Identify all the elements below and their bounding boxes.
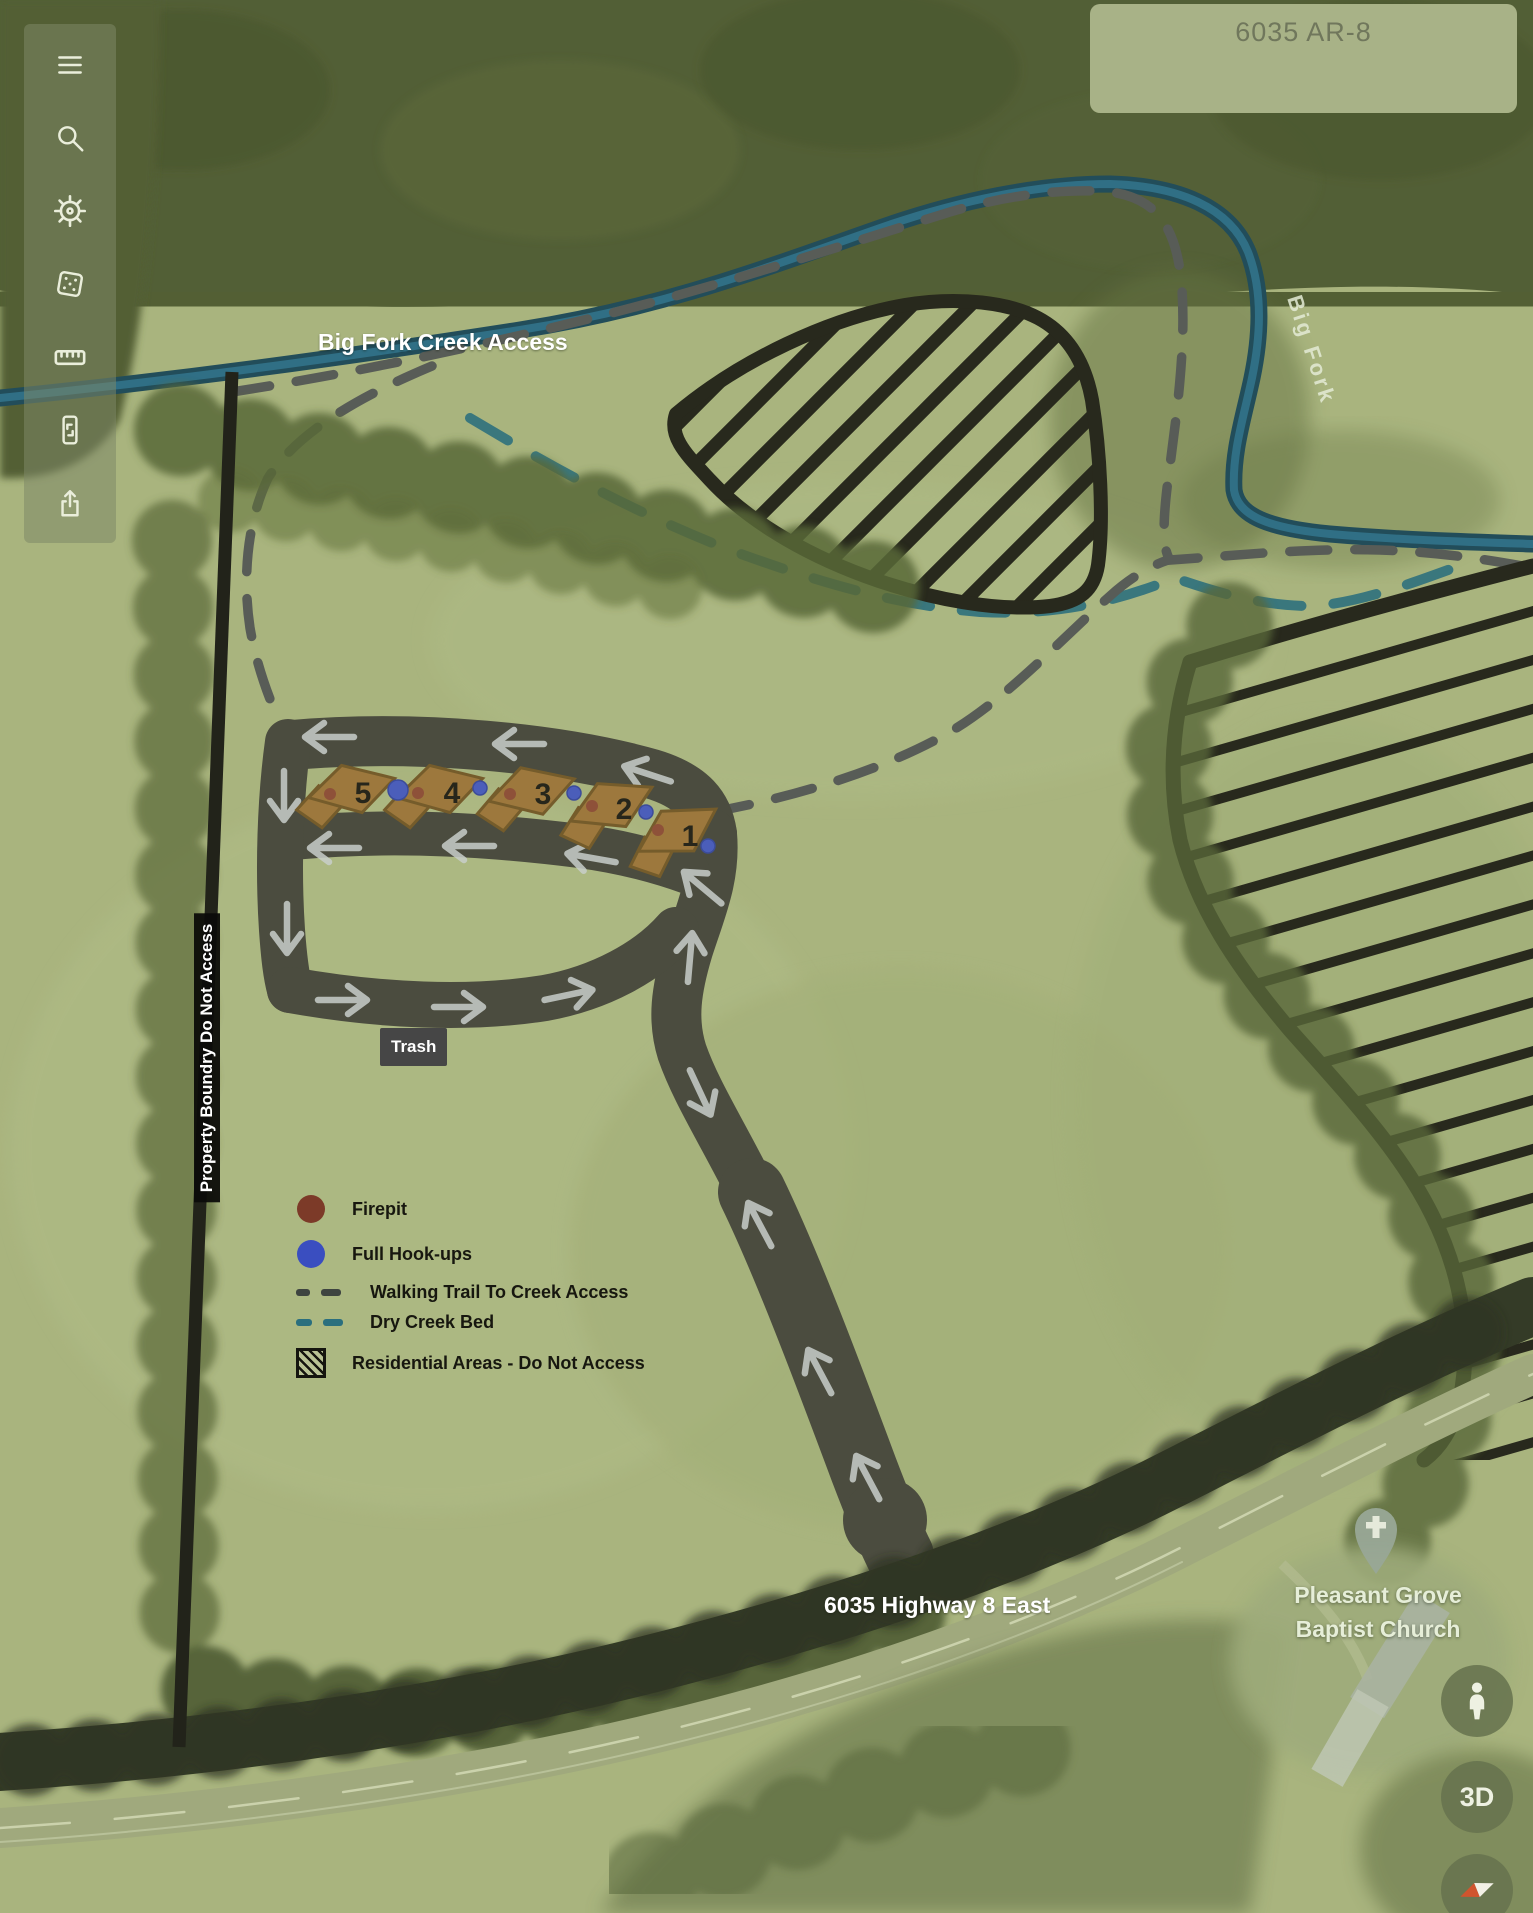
share-button[interactable] [24,466,116,539]
ruler-icon [53,340,87,374]
legend-label: Residential Areas - Do Not Access [352,1353,645,1374]
search-icon [54,122,86,154]
creek-access-label: Big Fork Creek Access [318,329,568,356]
walking-trail-legend-swatch [296,1289,344,1296]
legend-label: Dry Creek Bed [370,1312,494,1333]
campsite-number-4: 4 [444,777,461,810]
3d-button[interactable]: 3D [1441,1761,1513,1833]
property-boundary-label: Property Boundry Do Not Access [194,914,220,1203]
pegman-icon [1460,1681,1494,1721]
legend-label: Walking Trail To Creek Access [370,1282,628,1303]
legend-label: Full Hook-ups [352,1244,472,1265]
map-app: 5 4 3 2 1 [0,0,1533,1913]
campsite-number-3: 3 [535,778,552,811]
trash-label: Trash [380,1028,447,1066]
legend-row-residential: Residential Areas - Do Not Access [296,1342,645,1384]
legend-label: Firepit [352,1199,407,1220]
compass-needle-icon [1454,1877,1500,1903]
campsite-number-1: 1 [682,820,699,853]
legend-row-dry-creek: Dry Creek Bed [296,1308,645,1336]
dice-button[interactable] [24,247,116,320]
share-icon [54,487,86,519]
dry-creek-legend-swatch [296,1319,344,1326]
legend-row-walking-trail: Walking Trail To Creek Access [296,1276,645,1308]
dice-icon [54,268,86,300]
route-card[interactable]: 6035 AR-8 [1090,4,1517,113]
church-label-line1: Pleasant Grove [1294,1578,1461,1612]
firepit-legend-icon [296,1194,326,1224]
church-label-line2: Baptist Church [1294,1612,1461,1646]
menu-icon [54,49,86,81]
pegman-button[interactable] [1441,1665,1513,1737]
legend-row-firepit: Firepit [296,1186,645,1232]
toolbar [24,24,116,543]
campsite-number-5: 5 [355,777,372,810]
3d-button-label: 3D [1460,1782,1495,1813]
compass-helm-button[interactable] [24,174,116,247]
measure-button[interactable] [24,320,116,393]
campsite-number-2: 2 [616,793,633,826]
legend-row-hookups: Full Hook-ups [296,1232,645,1276]
helm-icon [53,194,87,228]
route-label: 6035 AR-8 [1090,17,1517,48]
highway-label: 6035 Highway 8 East [824,1592,1050,1619]
map-legend: Firepit Full Hook-ups Walking Trail To C… [296,1186,645,1384]
residential-legend-swatch [296,1348,326,1378]
menu-button[interactable] [24,28,116,101]
search-button[interactable] [24,101,116,174]
device-icon [54,414,86,446]
hookup-legend-icon [296,1239,326,1269]
church-label: Pleasant Grove Baptist Church [1294,1578,1461,1646]
device-button[interactable] [24,393,116,466]
